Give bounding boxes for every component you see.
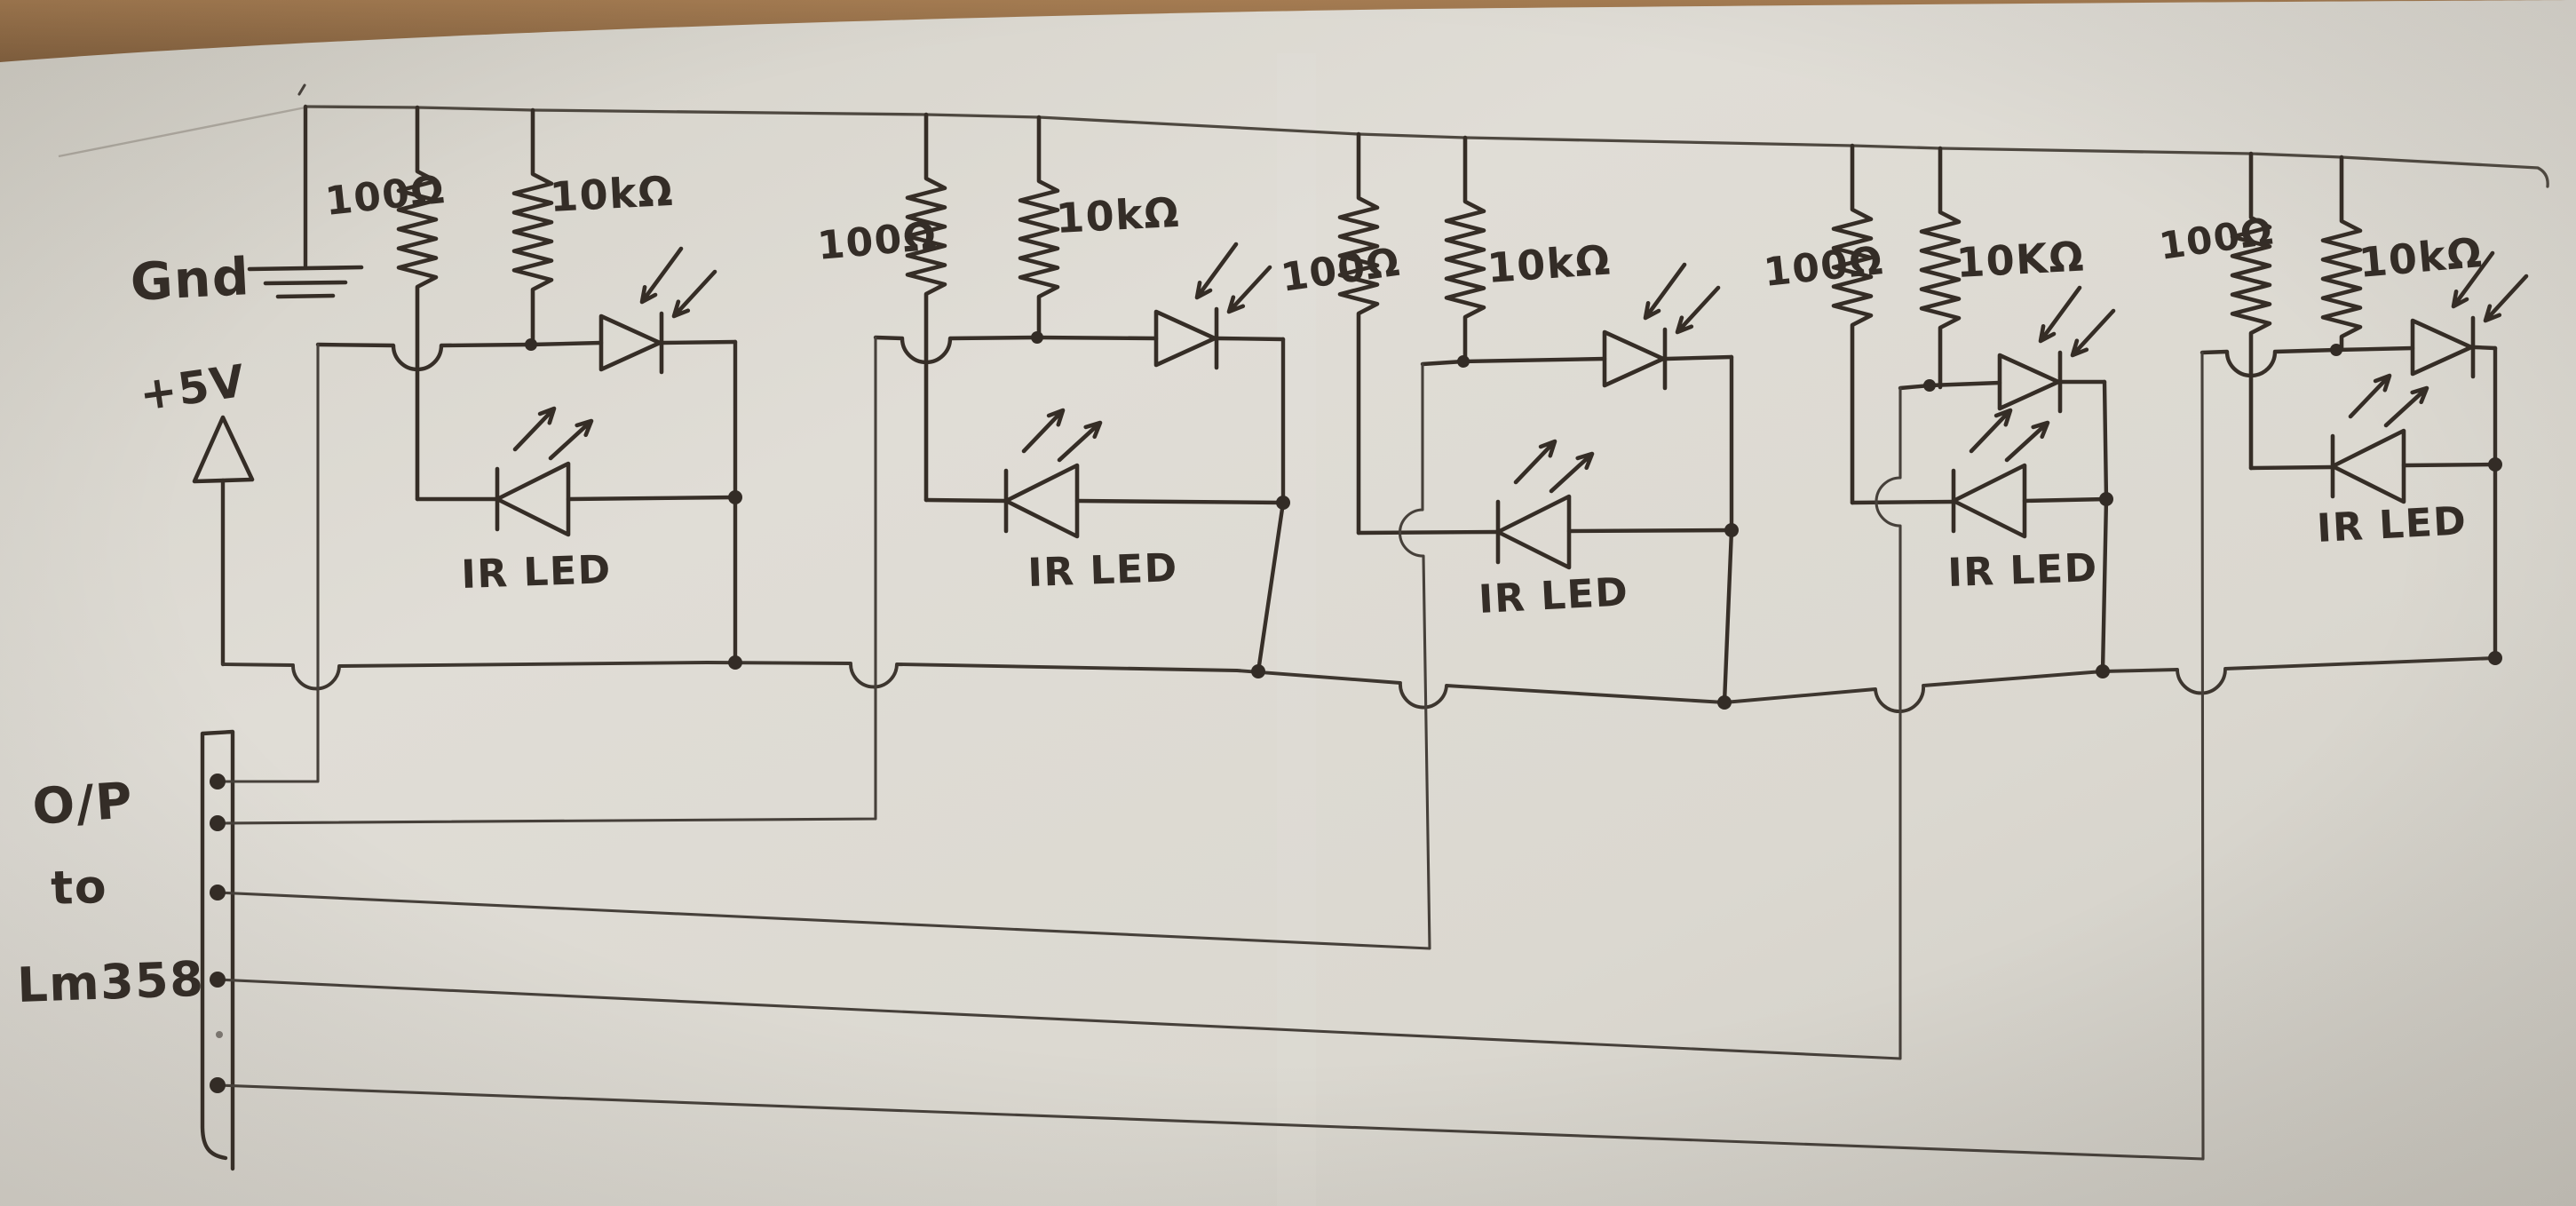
module-2-ir-led-label: IR LED: [1027, 545, 1179, 596]
output-destination-label-line-3: Lm358: [16, 951, 205, 1013]
module-5-junction-dot-top: [2330, 344, 2342, 356]
output-connector-pin-4: [210, 972, 226, 988]
module-2-led-row-wire: [926, 500, 1283, 503]
module-4-resistor-10k-label: 10KΩ: [1955, 232, 2086, 287]
module-2-junction-dot-top: [1031, 331, 1043, 344]
module-2-junction-dot-rail: [1251, 664, 1265, 678]
module-4-junction-dot-row: [2099, 492, 2113, 506]
module-2-junction-dot-row: [1276, 496, 1290, 510]
module-1-resistor-10k-label: 10kΩ: [549, 167, 675, 221]
module-4-ir-led-label: IR LED: [1947, 545, 2099, 596]
module-1-junction-dot-row: [728, 490, 742, 504]
output-connector-pin-5: [210, 1077, 226, 1093]
module-1-junction-dot-rail: [728, 655, 742, 670]
output-destination-label-line-2: to: [50, 861, 108, 916]
output-destination-label-line-1: O/P: [30, 772, 135, 837]
ground-label: Gnd: [129, 246, 251, 313]
module-5-junction-dot-rail: [2488, 651, 2502, 665]
module-3-junction-dot-top: [1457, 355, 1470, 368]
module-2-resistor-10k-label: 10kΩ: [1055, 188, 1181, 242]
paper-fold-highlight: [1277, 53, 1316, 1206]
module-3-junction-dot-rail: [1717, 695, 1732, 710]
output-connector-pin-1: [210, 774, 226, 789]
module-1-led-row-wire: [417, 497, 735, 499]
module-4-junction-dot-rail: [2096, 664, 2110, 678]
output-connector-pin-2: [210, 815, 226, 831]
circuit-diagram: 100Ω10kΩIR LED100Ω10kΩIR LED100Ω10kΩIR L…: [0, 0, 2576, 1206]
module-1-junction-dot-top: [525, 338, 537, 351]
module-3-ir-led-label: IR LED: [1478, 569, 1630, 623]
module-5-junction-dot-row: [2488, 457, 2502, 472]
module-1-ir-led-label: IR LED: [461, 547, 613, 598]
photo-of-hand-drawn-schematic: 100Ω10kΩIR LED100Ω10kΩIR LED100Ω10kΩIR L…: [0, 0, 2576, 1206]
output-connector-pin-3: [210, 885, 226, 901]
module-4-junction-dot-top: [1923, 379, 1936, 392]
stray-ink-dot: [216, 1031, 223, 1038]
module-3-junction-dot-row: [1724, 523, 1739, 537]
module-5-ir-led-label: IR LED: [2316, 498, 2469, 551]
module-3-resistor-10k-label: 10kΩ: [1486, 235, 1613, 292]
